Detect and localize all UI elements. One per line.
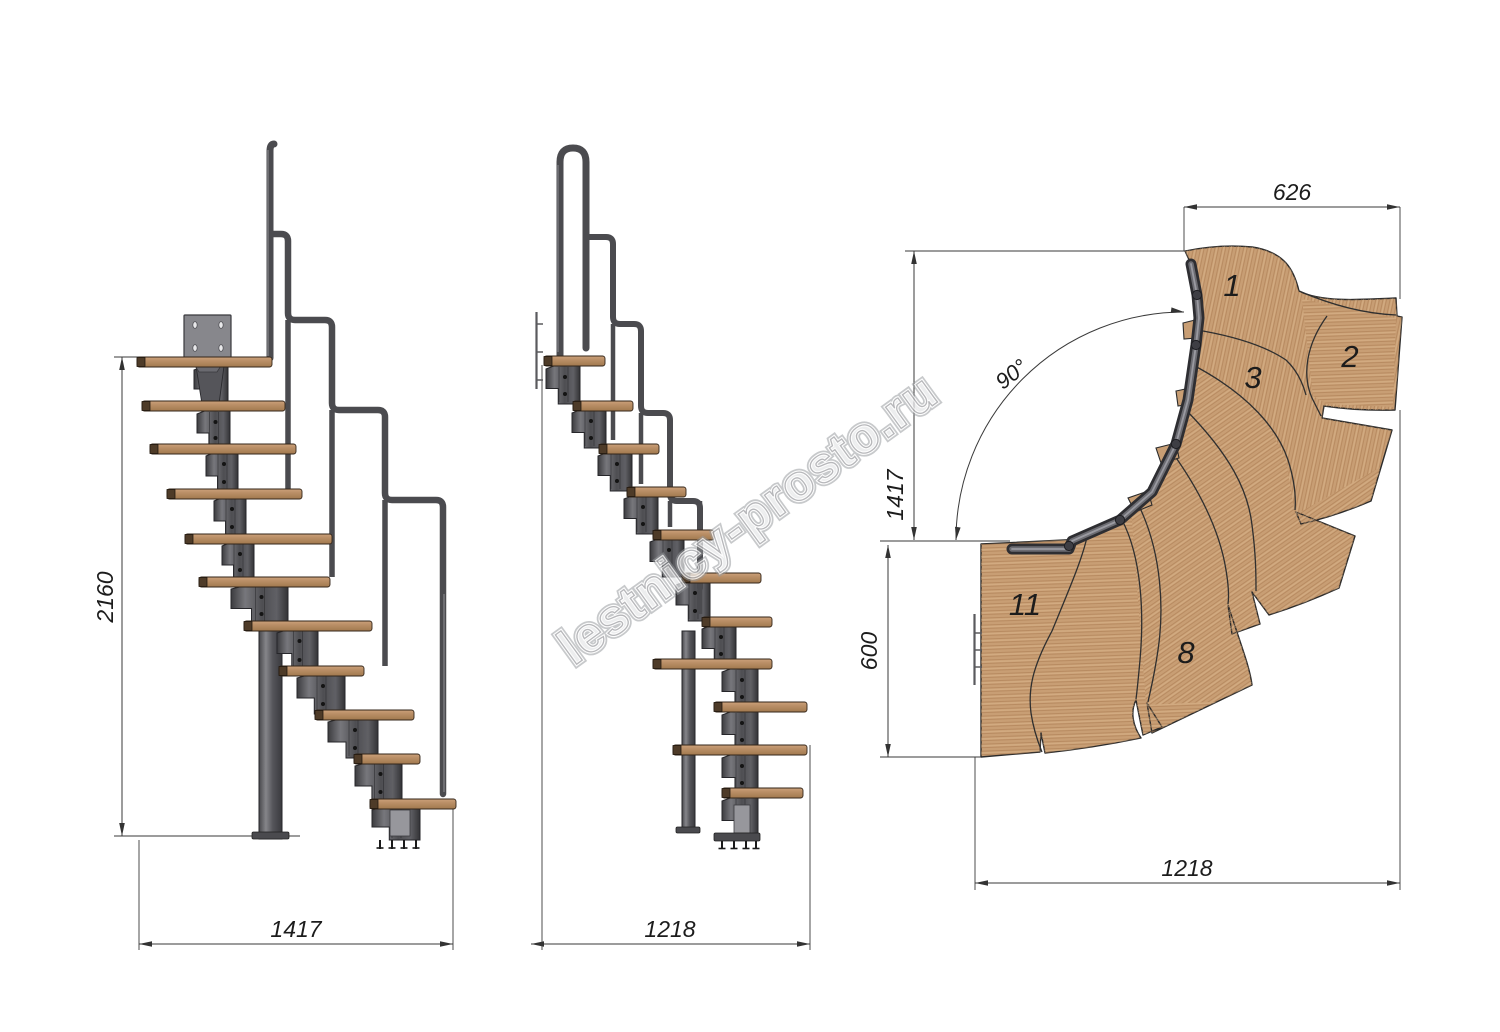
svg-text:1218: 1218 (1161, 855, 1212, 881)
svg-text:1417: 1417 (270, 916, 322, 942)
svg-text:1218: 1218 (644, 916, 695, 942)
svg-text:2: 2 (1340, 339, 1358, 374)
svg-text:600: 600 (856, 632, 882, 671)
svg-text:8: 8 (1177, 635, 1195, 670)
svg-text:11: 11 (1009, 587, 1041, 622)
svg-text:3: 3 (1244, 360, 1261, 395)
svg-text:1: 1 (1223, 268, 1240, 303)
svg-text:1417: 1417 (882, 468, 908, 520)
svg-text:2160: 2160 (92, 571, 118, 623)
svg-text:626: 626 (1273, 179, 1312, 205)
